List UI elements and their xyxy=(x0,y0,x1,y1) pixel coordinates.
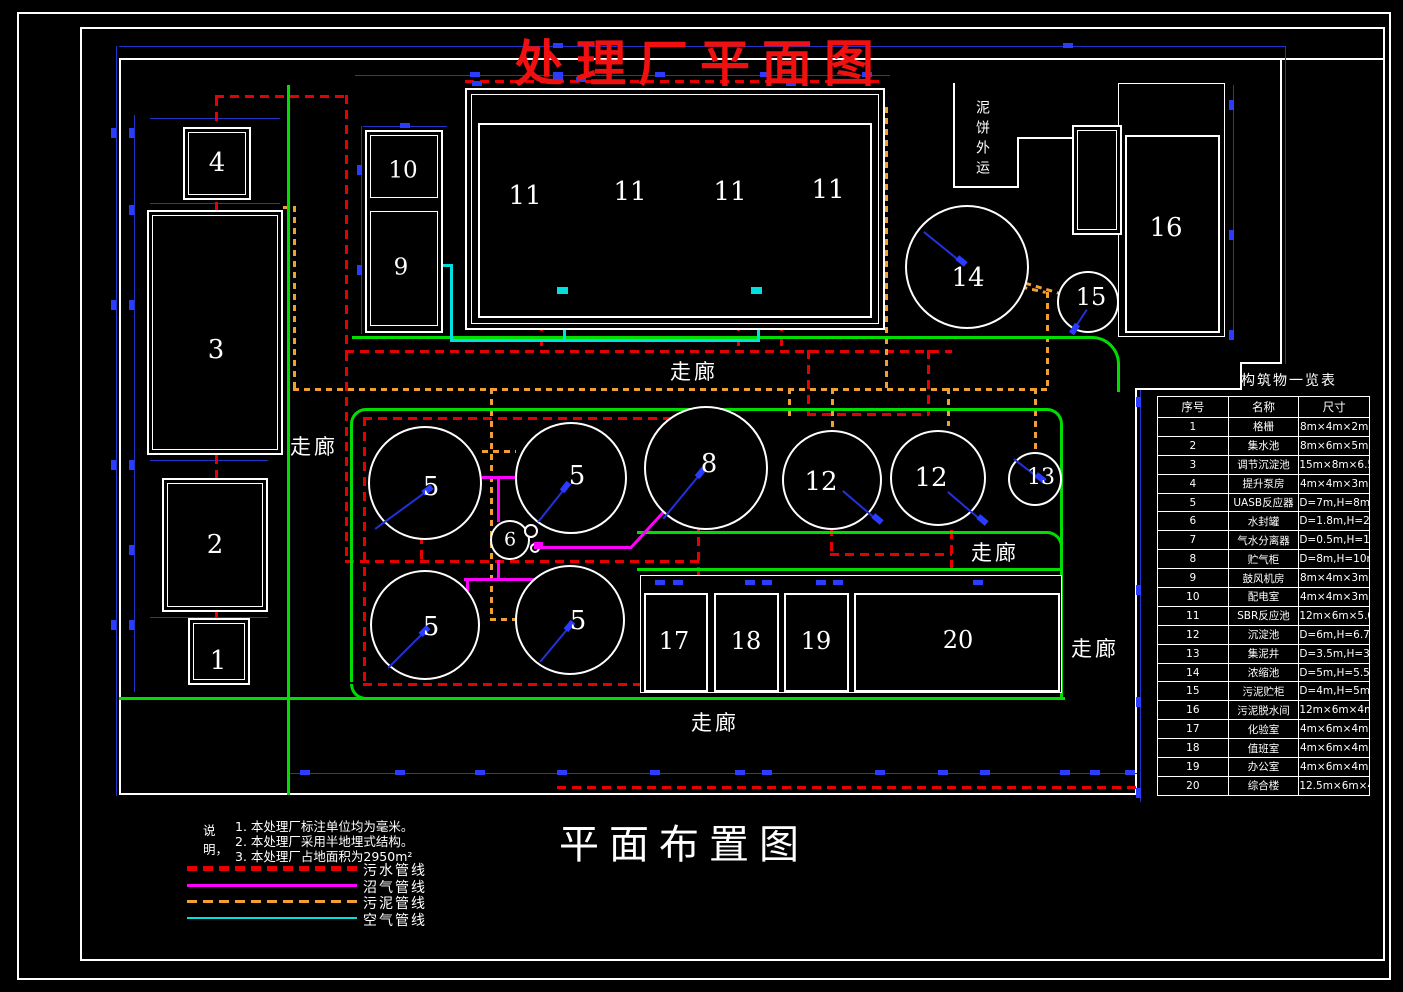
structure-name: 污泥贮柜 xyxy=(1228,682,1299,701)
structure-no: 4 xyxy=(1158,474,1229,493)
dimension-tick xyxy=(111,300,116,310)
table-row: 19办公室4m×6m×4m xyxy=(1158,758,1370,777)
structure-name: 办公室 xyxy=(1228,758,1299,777)
dimension-tick xyxy=(129,128,134,138)
site-fence-step-h2 xyxy=(1135,388,1242,390)
table-row: 8贮气柜D=8m,H=10m xyxy=(1158,550,1370,569)
legend-line-swatch xyxy=(187,900,357,903)
structure-size: D=8m,H=10m xyxy=(1299,550,1370,569)
dimension-tick xyxy=(357,165,362,175)
dimension-tick xyxy=(1229,230,1234,240)
structure-size: 8m×6m×5m xyxy=(1299,436,1370,455)
sewage-sed-link xyxy=(830,553,952,556)
structure-table-title: 构筑物一览表 xyxy=(1241,370,1337,390)
structure-size: 12m×6m×5.0m xyxy=(1299,606,1370,625)
structure-no: 10 xyxy=(1158,588,1229,607)
sludge-link-uasb xyxy=(482,450,516,453)
structure-no: 7 xyxy=(1158,531,1229,550)
structure-number-label: 5 xyxy=(570,608,587,634)
structure-size: 4m×4m×3m xyxy=(1299,474,1370,493)
dimension-tick xyxy=(1125,770,1135,775)
table-row: 11SBR反应池12m×6m×5.0m xyxy=(1158,606,1370,625)
dim-line-left-outer xyxy=(116,46,117,796)
biogas-main xyxy=(530,546,631,549)
dimension-tick xyxy=(1136,697,1141,707)
structure-number-label: 8 xyxy=(701,451,718,477)
structure-number-label: 11 xyxy=(713,179,746,205)
dim-line-blower-left xyxy=(361,126,362,334)
pipe-fitting-mark xyxy=(751,287,762,294)
legend-line-swatch xyxy=(187,917,357,919)
pipe-fitting-mark xyxy=(557,287,568,294)
dimension-tick xyxy=(300,770,310,775)
sewage-loop-left xyxy=(363,417,366,685)
dimension-tick xyxy=(111,128,116,138)
structure-size: D=4m,H=5m xyxy=(1299,682,1370,701)
structure-size: 15m×8m×6.5m xyxy=(1299,455,1370,474)
sludge-stub-sed0 xyxy=(788,388,791,420)
table-row: 3调节沉淀池15m×8m×6.5m xyxy=(1158,455,1370,474)
table-row: 12沉淀池D=6m,H=6.7m xyxy=(1158,625,1370,644)
sludge-pipe-uasb-foot xyxy=(490,618,518,621)
corridor-label: 走廊 xyxy=(290,431,338,461)
dimension-tick xyxy=(1090,770,1100,775)
sludge-pipe-main xyxy=(293,388,1048,391)
structure-size: 8m×4m×2m xyxy=(1299,418,1370,437)
layout-title: 平面布置图 xyxy=(559,812,809,870)
structure-no: 13 xyxy=(1158,644,1229,663)
tank-separator-a xyxy=(524,524,538,538)
legend-line-swatch xyxy=(187,884,357,887)
dimension-tick xyxy=(472,81,482,86)
cad-drawing-canvas[interactable]: 处理厂平面图 平面布置图 泥饼外运 构筑物一览表 序号名称尺寸1格栅8m×4m×… xyxy=(0,0,1403,992)
pipe-fitting-mark xyxy=(534,542,543,549)
corridor-line-bottom xyxy=(119,697,1065,700)
structure-no: 12 xyxy=(1158,625,1229,644)
structure-number-label: 12 xyxy=(804,469,837,495)
mud-yard-wall-left xyxy=(953,83,955,187)
structure-size: D=3.5m,H=3.3m xyxy=(1299,644,1370,663)
structure-number-label: 9 xyxy=(394,257,409,280)
structure-size: 8m×4m×3m xyxy=(1299,569,1370,588)
dimension-tick xyxy=(395,770,405,775)
structure-name: 水封罐 xyxy=(1228,512,1299,531)
structure-no: 17 xyxy=(1158,720,1229,739)
structure-no: 19 xyxy=(1158,758,1229,777)
table-row: 15污泥贮柜D=4m,H=5m xyxy=(1158,682,1370,701)
structure-no: 18 xyxy=(1158,739,1229,758)
structure-number-label: 5 xyxy=(569,463,586,489)
sewage-pipe-corridor xyxy=(345,350,952,353)
table-header: 名称 xyxy=(1228,397,1299,418)
dimension-tick xyxy=(762,770,772,775)
dimension-tick xyxy=(655,580,665,585)
structure-name: 鼓风机房 xyxy=(1228,569,1299,588)
structure-size: 4m×4m×3m xyxy=(1299,588,1370,607)
sewage-bridge-left xyxy=(807,350,810,415)
structure-name: 气水分离器 xyxy=(1228,531,1299,550)
bld-aux xyxy=(1072,125,1122,235)
biogas-drop-seal xyxy=(497,476,500,522)
structure-number-label: 18 xyxy=(731,629,762,653)
structure-name: 调节沉淀池 xyxy=(1228,455,1299,474)
structure-size: 12m×6m×4m xyxy=(1299,701,1370,720)
structure-name: 化验室 xyxy=(1228,720,1299,739)
structure-name: UASB反应器 xyxy=(1228,493,1299,512)
structure-number-label: 11 xyxy=(508,183,541,209)
dimension-tick xyxy=(111,620,116,630)
structure-name: 污泥脱水间 xyxy=(1228,701,1299,720)
dimension-tick xyxy=(980,770,990,775)
structure-name: 提升泵房 xyxy=(1228,474,1299,493)
dimension-tick xyxy=(1229,100,1234,110)
sewage-pipe-bld4-stub xyxy=(215,97,218,127)
site-fence-bottom xyxy=(119,793,1137,795)
structure-no: 3 xyxy=(1158,455,1229,474)
sludge-pipe-sbr-down xyxy=(885,107,888,389)
site-fence-right-upper xyxy=(1280,58,1282,364)
structure-name: 沉淀池 xyxy=(1228,625,1299,644)
structure-number-label: 10 xyxy=(388,160,417,183)
structure-name: 集泥井 xyxy=(1228,644,1299,663)
sewage-bridge xyxy=(807,413,929,416)
structure-size: 4m×6m×4m xyxy=(1299,720,1370,739)
mudcake-removal-label: 泥饼外运 xyxy=(972,100,992,180)
dim-line-bld2 xyxy=(150,460,268,461)
sewage-pipe-outfall xyxy=(557,786,1137,789)
dim-line-bld16 xyxy=(1233,85,1234,337)
dimension-tick xyxy=(129,460,134,470)
table-row: 18值班室4m×6m×4m xyxy=(1158,739,1370,758)
dim-line-left-inner xyxy=(134,115,135,692)
structure-number-label: 19 xyxy=(801,629,832,653)
structure-size: D=1.8m,H=2.5m xyxy=(1299,512,1370,531)
structure-size: D=7m,H=8m xyxy=(1299,493,1370,512)
dimension-tick xyxy=(1136,397,1141,407)
structure-name: 值班室 xyxy=(1228,739,1299,758)
sewage-pipe-main-riser xyxy=(345,95,348,352)
sewage-bridge-right xyxy=(927,350,930,415)
dimension-tick xyxy=(470,72,480,77)
dimension-tick xyxy=(745,580,755,585)
dimension-tick xyxy=(111,460,116,470)
corridor-line-mid xyxy=(637,531,1047,534)
structure-name: 贮气柜 xyxy=(1228,550,1299,569)
structure-no: 16 xyxy=(1158,701,1229,720)
table-row: 14浓缩池D=5m,H=5.5m xyxy=(1158,663,1370,682)
corridor-label: 走廊 xyxy=(670,356,718,386)
table-row: 16污泥脱水间12m×6m×4m xyxy=(1158,701,1370,720)
corridor-label: 走廊 xyxy=(971,537,1019,567)
dim-line-right-outer xyxy=(1285,46,1286,364)
structure-number-label: 5 xyxy=(423,614,440,640)
structure-size: D=0.5m,H=1.8m xyxy=(1299,531,1370,550)
sewage-loop-top xyxy=(363,417,699,420)
dimension-tick xyxy=(673,580,683,585)
dimension-tick xyxy=(129,205,134,215)
notes-heading: 说明， xyxy=(203,820,228,858)
structure-size: 12.5m×6m×4m xyxy=(1299,776,1370,795)
legend-line-swatch xyxy=(187,866,357,871)
structure-name: 格栅 xyxy=(1228,418,1299,437)
dimension-tick xyxy=(1136,585,1141,595)
dimension-tick xyxy=(762,580,772,585)
dimension-tick xyxy=(973,580,983,585)
dimension-tick xyxy=(833,580,843,585)
dimension-tick xyxy=(875,770,885,775)
structure-no: 14 xyxy=(1158,663,1229,682)
dimension-tick xyxy=(475,770,485,775)
structure-number-label: 16 xyxy=(1149,215,1182,241)
corridor-entry-line xyxy=(1117,364,1120,392)
sewage-pipe-bld32-stub xyxy=(215,455,218,479)
structure-number-label: 11 xyxy=(613,179,646,205)
structure-no: 2 xyxy=(1158,436,1229,455)
structure-no: 9 xyxy=(1158,569,1229,588)
dimension-tick xyxy=(129,545,134,555)
structure-number-label: 17 xyxy=(659,629,690,653)
structure-name: 配电室 xyxy=(1228,588,1299,607)
table-row: 13集泥井D=3.5m,H=3.3m xyxy=(1158,644,1370,663)
structure-size: 4m×6m×4m xyxy=(1299,739,1370,758)
dim-line-right-inner xyxy=(1140,390,1141,802)
structure-number-label: 14 xyxy=(951,265,984,291)
structure-list-table: 序号名称尺寸1格栅8m×4m×2m2集水池8m×6m×5m3调节沉淀池15m×8… xyxy=(1157,396,1370,796)
table-row: 20综合楼12.5m×6m×4m xyxy=(1158,776,1370,795)
structure-no: 6 xyxy=(1158,512,1229,531)
structure-number-label: 15 xyxy=(1076,285,1107,309)
site-fence-left xyxy=(119,58,121,795)
table-row: 6水封罐D=1.8m,H=2.5m xyxy=(1158,512,1370,531)
structure-number-label: 2 xyxy=(207,532,224,558)
dimension-tick xyxy=(1063,43,1073,48)
block1720-top-line xyxy=(637,568,1061,571)
structure-number-label: 3 xyxy=(208,337,225,363)
dimension-tick xyxy=(1136,788,1141,798)
bld-3 xyxy=(147,210,283,455)
dimension-tick xyxy=(735,770,745,775)
structure-name: 综合楼 xyxy=(1228,776,1299,795)
structure-no: 8 xyxy=(1158,550,1229,569)
dimension-tick xyxy=(357,265,362,275)
structure-no: 5 xyxy=(1158,493,1229,512)
structure-no: 1 xyxy=(1158,418,1229,437)
corridor-label: 走廊 xyxy=(1071,633,1119,663)
site-fence-step-h1 xyxy=(1240,362,1282,364)
table-header: 尺寸 xyxy=(1299,397,1370,418)
dimension-tick xyxy=(400,123,410,128)
structure-name: 集水池 xyxy=(1228,436,1299,455)
table-row: 2集水池8m×6m×5m xyxy=(1158,436,1370,455)
air-pipe-drop xyxy=(450,264,453,341)
sewage-sed-stub2 xyxy=(950,530,953,570)
dimension-tick xyxy=(650,770,660,775)
structure-number-label: 11 xyxy=(811,177,844,203)
drawing-title: 处理厂平面图 xyxy=(514,24,886,96)
sludge-pipe-riser xyxy=(293,206,296,390)
mud-yard-wall-bottom xyxy=(953,186,1019,188)
structure-number-label: 4 xyxy=(209,150,226,176)
dimension-tick xyxy=(129,620,134,630)
structure-size: 4m×6m×4m xyxy=(1299,758,1370,777)
table-row: 1格栅8m×4m×2m xyxy=(1158,418,1370,437)
structure-name: 浓缩池 xyxy=(1228,663,1299,682)
sludge-riser-thickener xyxy=(1046,292,1049,390)
structure-size: D=5m,H=5.5m xyxy=(1299,663,1370,682)
dimension-tick xyxy=(1229,330,1234,340)
sewage-pipe-mid-riser xyxy=(345,352,348,560)
sewage-pipe-top xyxy=(215,95,345,98)
table-row: 17化验室4m×6m×4m xyxy=(1158,720,1370,739)
structure-name: SBR反应池 xyxy=(1228,606,1299,625)
sludge-stub-sed2 xyxy=(947,388,950,426)
dimension-tick xyxy=(816,580,826,585)
table-row: 5UASB反应器D=7m,H=8m xyxy=(1158,493,1370,512)
table-row: 10配电室4m×4m×3m xyxy=(1158,588,1370,607)
air-pipe-main xyxy=(450,339,760,342)
biogas-seal-down xyxy=(497,560,500,580)
tank-loop-left xyxy=(350,424,353,682)
table-row: 9鼓风机房8m×4m×3m xyxy=(1158,569,1370,588)
structure-number-label: 12 xyxy=(914,465,947,491)
dimension-tick xyxy=(557,770,567,775)
sludge-pipe-uasb xyxy=(490,388,493,620)
sbr-cells xyxy=(478,123,872,318)
structure-no: 15 xyxy=(1158,682,1229,701)
structure-number-label: 6 xyxy=(504,531,516,550)
structure-table: 序号名称尺寸1格栅8m×4m×2m2集水池8m×6m×5m3调节沉淀池15m×8… xyxy=(1157,396,1370,796)
table-row: 4提升泵房4m×4m×3m xyxy=(1158,474,1370,493)
structure-no: 20 xyxy=(1158,776,1229,795)
structure-number-label: 5 xyxy=(423,474,440,500)
dim-line-bottom xyxy=(287,773,1137,774)
table-header: 序号 xyxy=(1158,397,1229,418)
legend-label: 空气管线 xyxy=(363,910,427,930)
corridor-label: 走廊 xyxy=(691,707,739,737)
structure-number-label: 13 xyxy=(1027,467,1055,489)
structure-number-label: 1 xyxy=(210,648,227,674)
table-row: 7气水分离器D=0.5m,H=1.8m xyxy=(1158,531,1370,550)
dimension-tick xyxy=(129,300,134,310)
dimension-tick xyxy=(938,770,948,775)
mud-yard-wall-step xyxy=(1017,137,1019,188)
dimension-tick xyxy=(1060,770,1070,775)
structure-number-label: 20 xyxy=(943,628,974,652)
sewage-pipe-lower xyxy=(345,560,699,563)
sludge-stub-well xyxy=(1034,388,1037,453)
structure-no: 11 xyxy=(1158,606,1229,625)
structure-size: D=6m,H=6.7m xyxy=(1299,625,1370,644)
